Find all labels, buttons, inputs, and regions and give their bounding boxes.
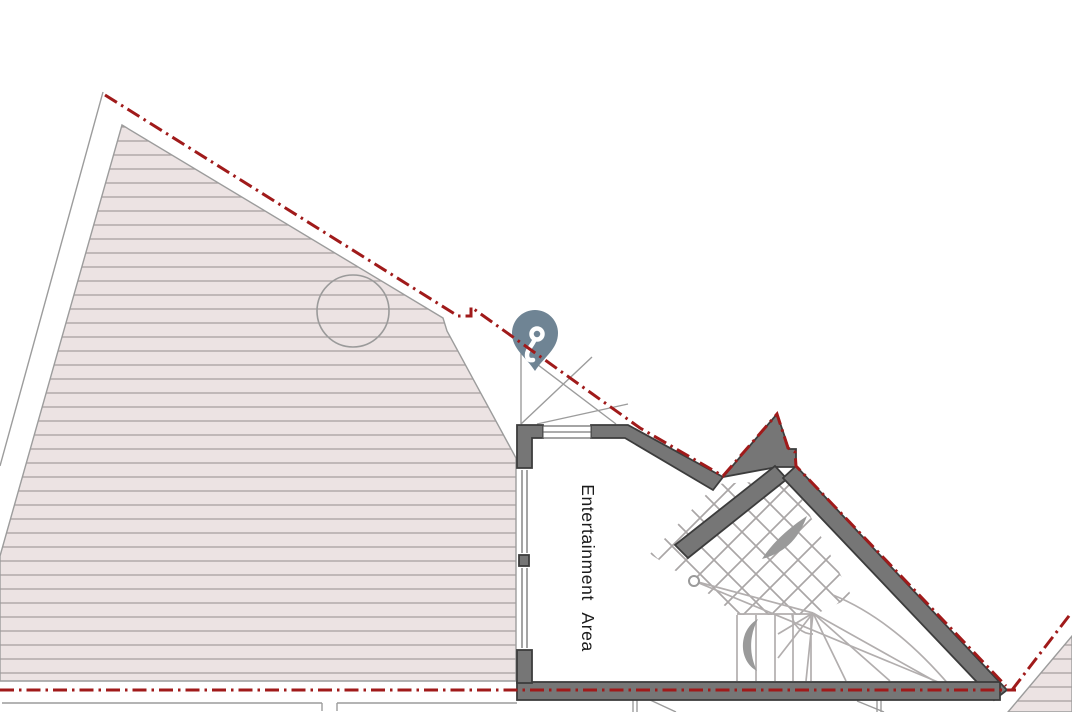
wall-bottom-left-pillar (517, 650, 532, 683)
floorplan-drawing: Entertainment Area (0, 0, 1072, 712)
newel-post (689, 576, 699, 586)
floorplan-canvas[interactable]: Entertainment Area (0, 0, 1072, 712)
room-label: Entertainment Area (578, 484, 598, 652)
wall-left-mullion (519, 555, 529, 566)
